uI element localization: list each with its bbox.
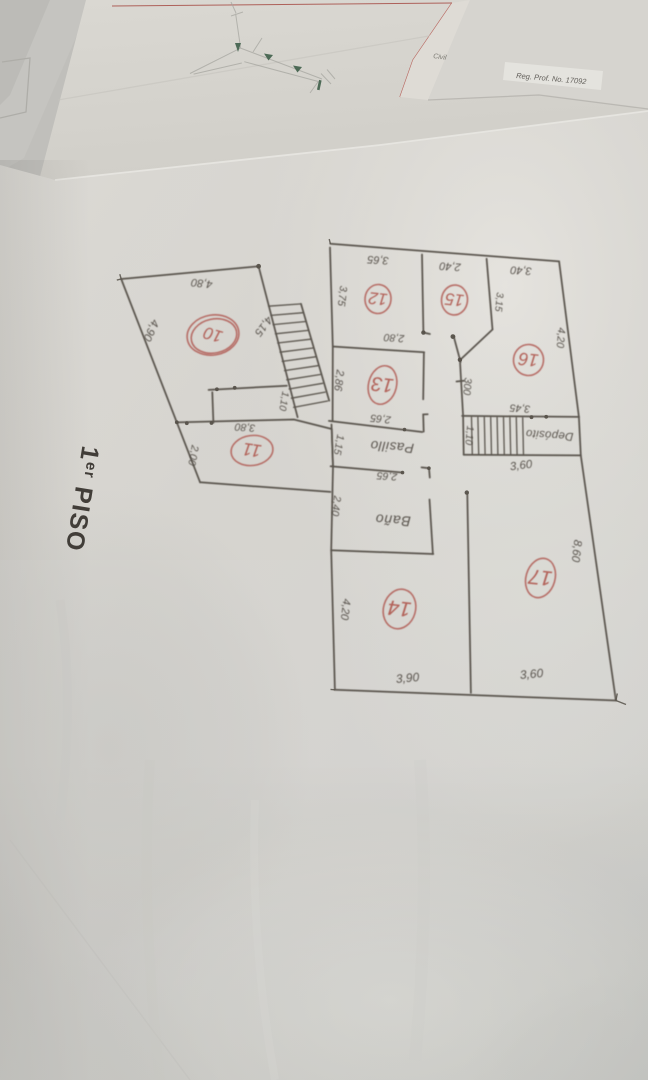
svg-text:17: 17	[526, 564, 553, 589]
svg-text:11: 11	[241, 439, 262, 461]
svg-text:300: 300	[460, 377, 473, 396]
svg-text:12: 12	[367, 288, 388, 309]
svg-text:2,65: 2,65	[370, 411, 393, 425]
svg-text:13: 13	[370, 372, 394, 396]
svg-text:Baño: Baño	[374, 511, 411, 529]
svg-text:3,15: 3,15	[492, 292, 505, 313]
svg-text:15: 15	[444, 289, 465, 310]
svg-text:Pasillo: Pasillo	[370, 438, 415, 456]
svg-text:16: 16	[517, 348, 540, 370]
svg-text:3,90: 3,90	[395, 670, 420, 686]
svg-text:3,75: 3,75	[335, 285, 349, 307]
svg-text:2,80: 2,80	[383, 331, 405, 344]
svg-text:2,40: 2,40	[438, 259, 462, 273]
svg-text:3,80: 3,80	[234, 420, 255, 433]
svg-text:4,80: 4,80	[190, 276, 213, 290]
svg-text:1,10: 1,10	[462, 425, 475, 446]
svg-text:3,60: 3,60	[519, 666, 544, 682]
svg-text:3,40: 3,40	[509, 263, 532, 277]
svg-text:3,65: 3,65	[366, 253, 389, 267]
svg-text:4,20: 4,20	[554, 327, 568, 349]
svg-text:14: 14	[387, 595, 413, 620]
svg-text:2,65: 2,65	[376, 469, 398, 482]
svg-text:3,45: 3,45	[509, 401, 530, 414]
